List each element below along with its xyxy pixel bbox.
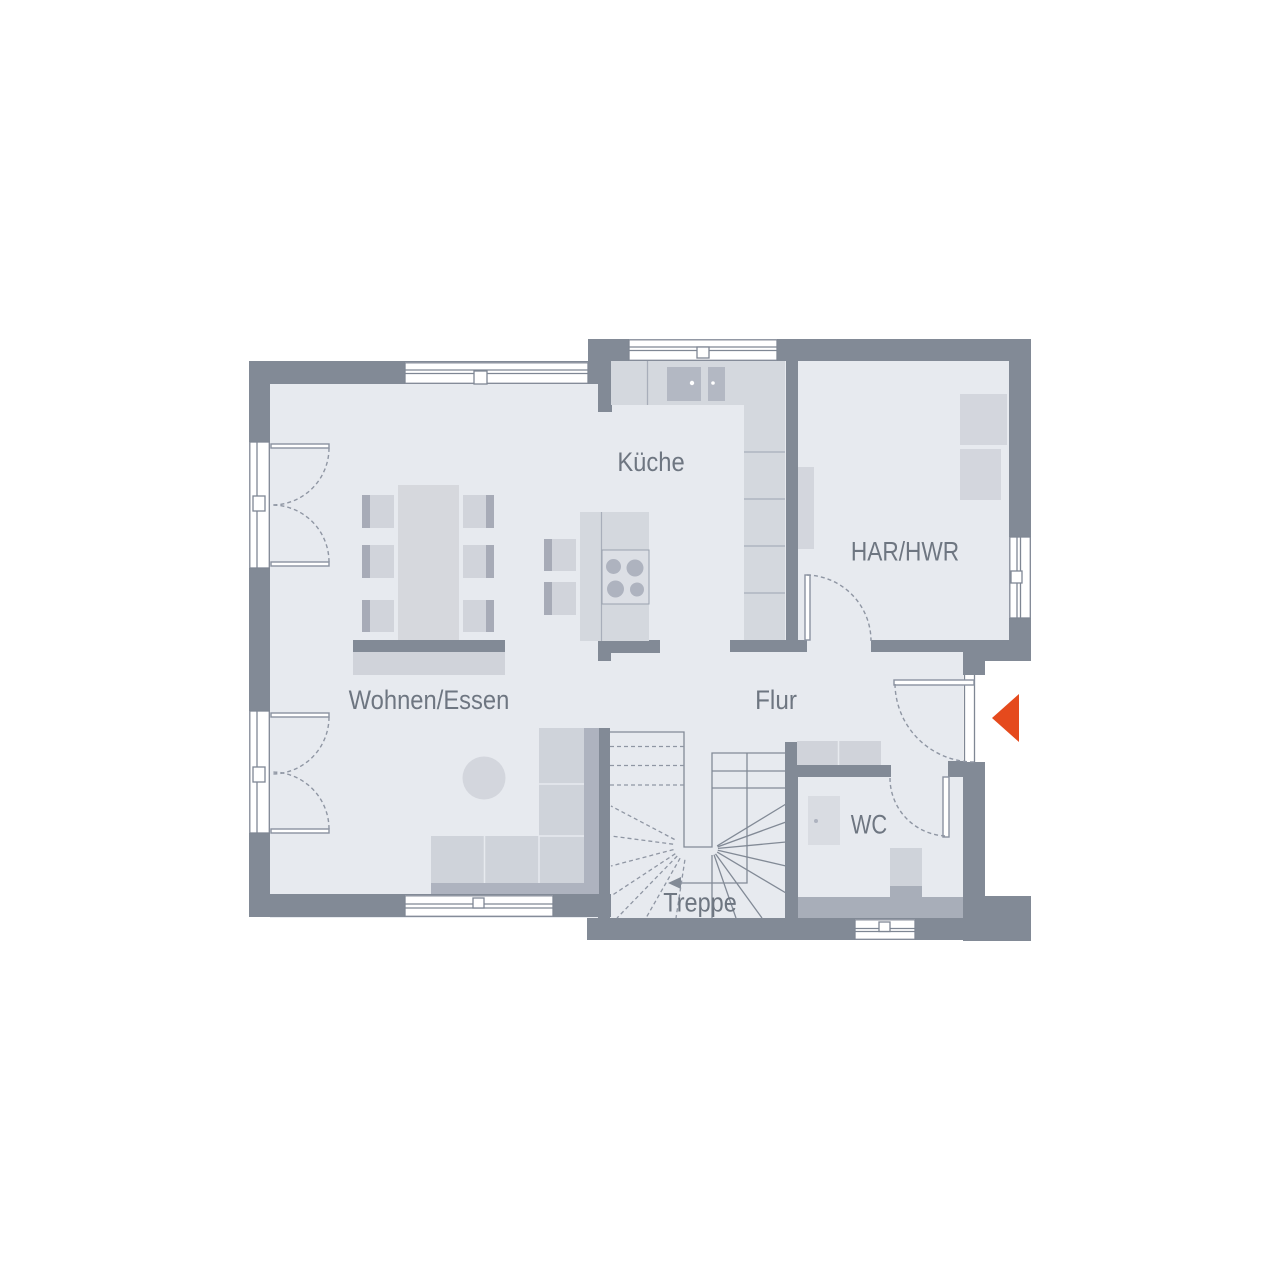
svg-text:Wohnen/Essen: Wohnen/Essen <box>349 686 510 716</box>
svg-text:Flur: Flur <box>755 686 797 715</box>
svg-text:Küche: Küche <box>617 448 684 478</box>
svg-text:HAR/HWR: HAR/HWR <box>851 537 959 567</box>
svg-text:WC: WC <box>851 810 887 840</box>
svg-text:Treppe: Treppe <box>663 888 737 918</box>
